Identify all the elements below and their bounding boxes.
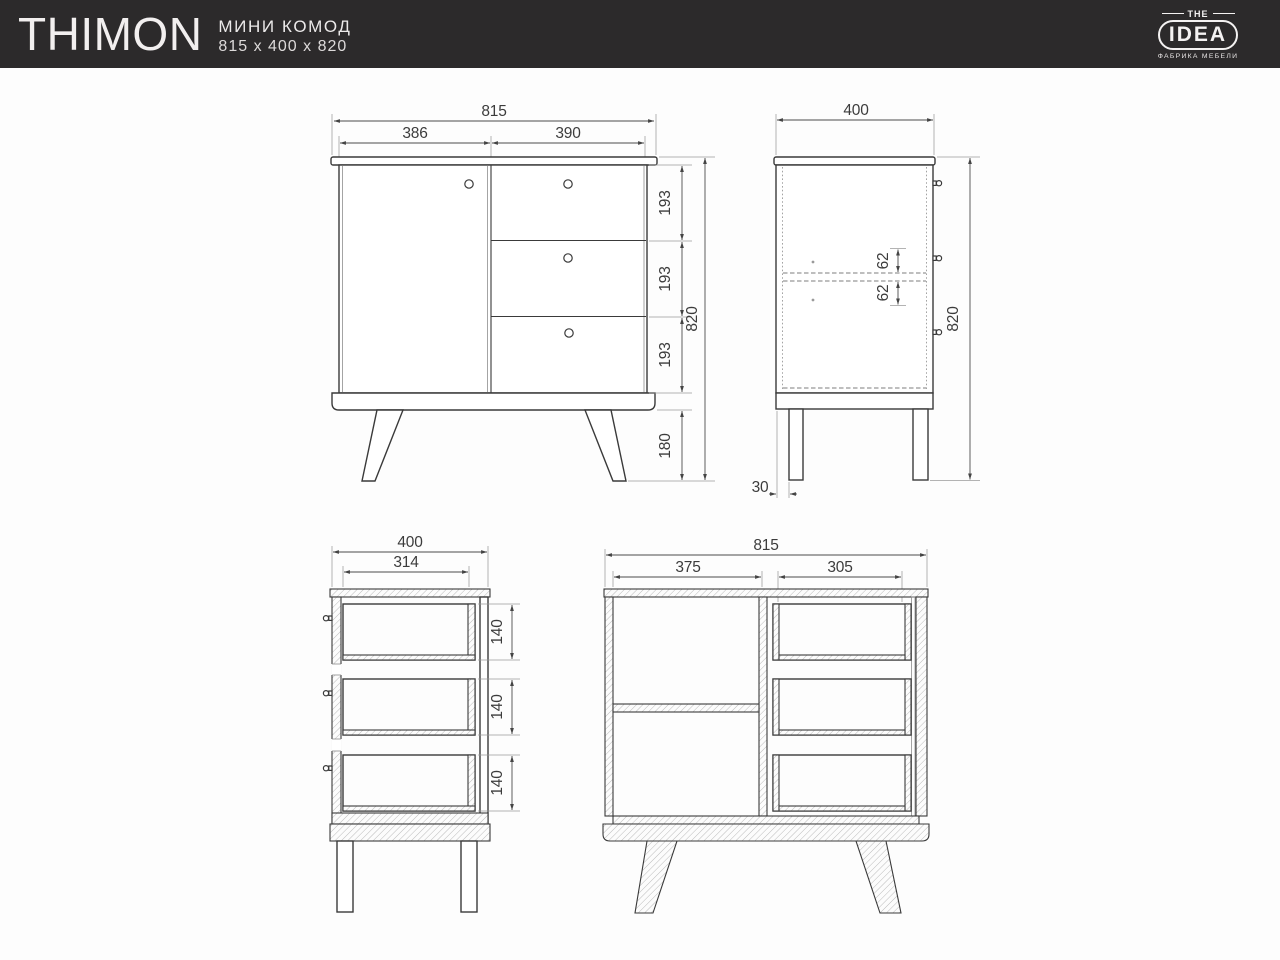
front-body bbox=[339, 165, 647, 393]
dim-label-30: 30 bbox=[752, 479, 769, 496]
dim-label-400-section: 400 bbox=[397, 534, 423, 551]
dim-label-140-2: 140 bbox=[489, 694, 506, 720]
section-left-leg bbox=[337, 841, 353, 912]
dim-label-815: 815 bbox=[481, 103, 506, 120]
section-drawer-1 bbox=[343, 604, 475, 660]
product-type: МИНИ КОМОД bbox=[218, 17, 351, 37]
fsection-bottom-panel bbox=[613, 816, 919, 824]
dim-label-314: 314 bbox=[393, 554, 419, 571]
technical-drawing: 815 386 390 bbox=[0, 68, 1280, 960]
dim-label-193-2: 193 bbox=[657, 266, 674, 291]
fsection-left-wall bbox=[605, 597, 613, 816]
dim-label-820-front: 820 bbox=[684, 306, 701, 332]
side-front-leg bbox=[789, 409, 803, 480]
fsection-drawer-2 bbox=[773, 679, 911, 735]
side-knob-icons bbox=[933, 181, 942, 335]
drawer2-knob-icon bbox=[564, 254, 572, 262]
dim-label-390: 390 bbox=[555, 125, 581, 142]
fsection-base bbox=[603, 824, 929, 841]
dim-label-305: 305 bbox=[827, 559, 852, 576]
side-body bbox=[776, 165, 933, 393]
logo-the-text: THE bbox=[1188, 9, 1209, 19]
side-base bbox=[776, 393, 933, 409]
section-base bbox=[330, 824, 490, 841]
dim-label-193-1: 193 bbox=[657, 190, 674, 215]
dim-label-386: 386 bbox=[402, 125, 427, 142]
product-dimensions: 815 x 400 x 820 bbox=[218, 38, 351, 56]
section-right-leg bbox=[461, 841, 477, 912]
side-view: 400 62 62 bbox=[752, 102, 980, 498]
front-view: 815 386 390 bbox=[331, 103, 715, 481]
fsection-left-leg bbox=[635, 841, 677, 913]
side-back-leg bbox=[913, 409, 928, 480]
side-dim-depth: 400 bbox=[776, 102, 934, 155]
side-top-panel bbox=[774, 157, 935, 165]
dim-label-375: 375 bbox=[675, 559, 700, 576]
section-drawer-2 bbox=[343, 679, 475, 735]
dim-label-62-bottom: 62 bbox=[875, 285, 892, 302]
logo-line-right bbox=[1213, 13, 1235, 14]
section-back-panel bbox=[480, 597, 488, 825]
section-knob-icons bbox=[323, 616, 332, 771]
drawer1-knob-icon bbox=[564, 180, 572, 188]
section-top-panel bbox=[330, 589, 490, 597]
side-dim-total-height: 820 bbox=[930, 157, 980, 481]
dowel-mark bbox=[812, 299, 815, 302]
dowel-mark bbox=[812, 261, 815, 264]
fsection-dim-total-width: 815 bbox=[605, 537, 927, 587]
drawing-sheet: 815 386 390 bbox=[0, 68, 1280, 960]
product-subtitle: МИНИ КОМОД 815 x 400 x 820 bbox=[218, 17, 351, 56]
front-section-view: 815 375 305 bbox=[603, 537, 929, 913]
fsection-right-wall bbox=[916, 597, 927, 816]
front-base bbox=[332, 393, 655, 410]
dim-label-62-top: 62 bbox=[875, 253, 892, 270]
front-right-leg bbox=[585, 410, 626, 481]
section-drawer-fronts bbox=[332, 597, 341, 825]
fsection-right-leg bbox=[856, 841, 901, 913]
front-top-panel bbox=[331, 157, 657, 165]
drawer3-knob-icon bbox=[565, 329, 573, 337]
section-drawer-3 bbox=[343, 755, 475, 811]
fsection-drawer-runner bbox=[912, 597, 916, 816]
product-name: THIMON bbox=[18, 11, 202, 57]
fsection-drawer-1 bbox=[773, 604, 911, 660]
logo-line-left bbox=[1162, 13, 1184, 14]
dim-label-400-side: 400 bbox=[843, 102, 869, 119]
product-title-block: THIMON МИНИ КОМОД 815 x 400 x 820 bbox=[18, 11, 351, 57]
dim-label-815-section: 815 bbox=[753, 537, 778, 554]
fsection-divider bbox=[759, 597, 767, 816]
brand-logo: THE IDEA ФАБРИКА МЕБЕЛИ bbox=[1146, 9, 1250, 60]
fsection-top-panel bbox=[604, 589, 928, 597]
front-left-leg bbox=[362, 410, 403, 481]
dim-label-193-3: 193 bbox=[657, 342, 674, 367]
logo-tagline: ФАБРИКА МЕБЕЛИ bbox=[1158, 53, 1239, 60]
section-dim-drawer-depth: 314 bbox=[343, 554, 469, 587]
door-knob-icon bbox=[465, 180, 473, 188]
dim-label-140-3: 140 bbox=[489, 770, 506, 796]
logo-the: THE bbox=[1158, 9, 1239, 19]
logo-idea-badge: IDEA bbox=[1158, 20, 1238, 50]
section-bottom-panel bbox=[332, 813, 488, 824]
dim-label-820-side: 820 bbox=[945, 306, 962, 332]
dim-label-140-1: 140 bbox=[489, 619, 506, 645]
title-bar: THIMON МИНИ КОМОД 815 x 400 x 820 THE ID… bbox=[0, 0, 1280, 68]
drawer-section-view: 400 314 bbox=[323, 534, 520, 912]
fsection-drawer-3 bbox=[773, 755, 911, 811]
dim-label-180: 180 bbox=[657, 433, 674, 459]
front-dim-total-width: 815 bbox=[332, 103, 656, 155]
fsection-shelf bbox=[613, 704, 759, 712]
